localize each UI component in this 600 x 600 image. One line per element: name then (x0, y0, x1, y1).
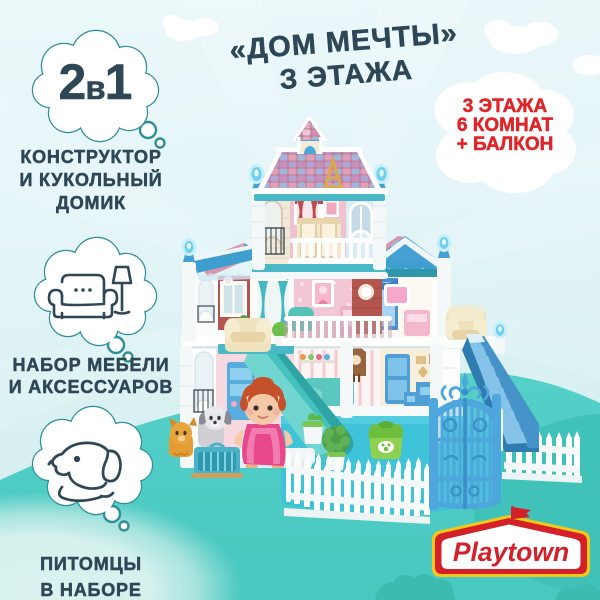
svg-text:Playtown: Playtown (453, 537, 569, 567)
